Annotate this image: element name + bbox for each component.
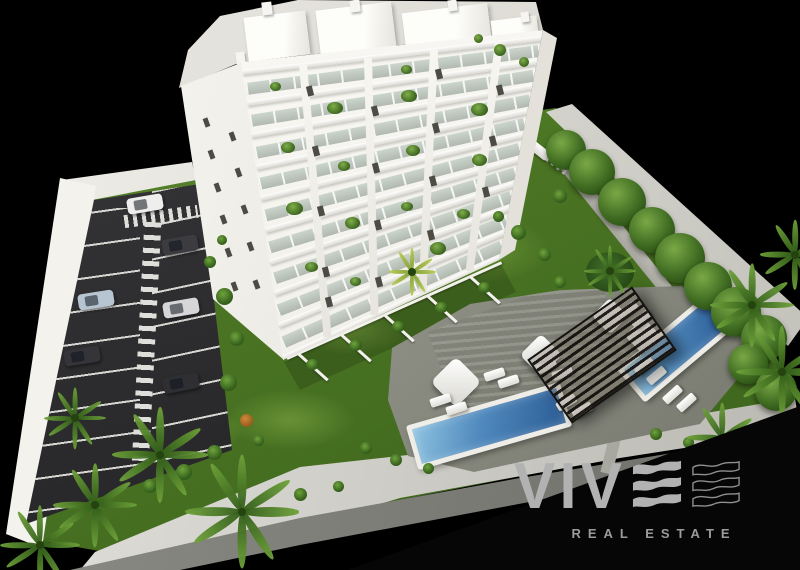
palm-crown — [156, 451, 164, 459]
bush — [204, 256, 216, 268]
palm-leaf — [73, 418, 78, 449]
palm-crown — [408, 268, 416, 276]
wave-e-icon — [632, 458, 682, 510]
wave-e-outline-icon — [692, 458, 740, 510]
brand-text: VIV — [514, 461, 626, 514]
bush — [423, 463, 434, 474]
palm-crown — [238, 508, 246, 516]
palm-leaf — [237, 512, 246, 569]
bush — [253, 435, 264, 446]
palm-leaf — [792, 255, 798, 290]
palm-leaf — [156, 455, 164, 503]
bush — [538, 248, 551, 261]
architectural-render: VIV REAL ESTATE — [0, 0, 800, 570]
palm-crown — [748, 301, 756, 309]
palm-leaf — [37, 505, 43, 545]
brand-tagline: REAL ESTATE — [514, 526, 794, 541]
bush — [294, 488, 307, 501]
bush — [143, 479, 157, 493]
bush — [229, 331, 244, 346]
bush — [360, 442, 372, 454]
bush — [220, 374, 237, 391]
bush — [650, 428, 662, 440]
bush — [553, 189, 567, 203]
palm-crown — [606, 267, 614, 275]
palm-crown — [36, 541, 44, 549]
brand-logo: VIV REAL ESTATE — [514, 458, 794, 541]
palm-crown — [791, 251, 799, 259]
palm-leaf — [749, 305, 756, 347]
palm-leaf — [710, 302, 752, 309]
palm-leaf — [778, 372, 785, 418]
palm-leaf — [92, 463, 99, 505]
palm-leaf — [53, 502, 95, 509]
bush — [554, 276, 566, 288]
bush — [511, 225, 526, 240]
palm-crown — [778, 368, 786, 376]
bush — [493, 211, 504, 222]
palm-leaf — [156, 407, 164, 455]
bush — [207, 445, 222, 460]
palm-leaf — [0, 542, 40, 548]
bush — [390, 454, 402, 466]
palm-crown — [91, 501, 99, 509]
palm-leaf — [92, 505, 99, 547]
palm-leaf — [237, 455, 246, 512]
bush — [333, 481, 344, 492]
bush — [217, 235, 227, 245]
brand-wordmark: VIV — [514, 458, 794, 513]
palm-leaf — [749, 263, 756, 305]
bush — [216, 288, 233, 305]
bush — [240, 414, 253, 427]
palm-crown — [71, 414, 79, 422]
